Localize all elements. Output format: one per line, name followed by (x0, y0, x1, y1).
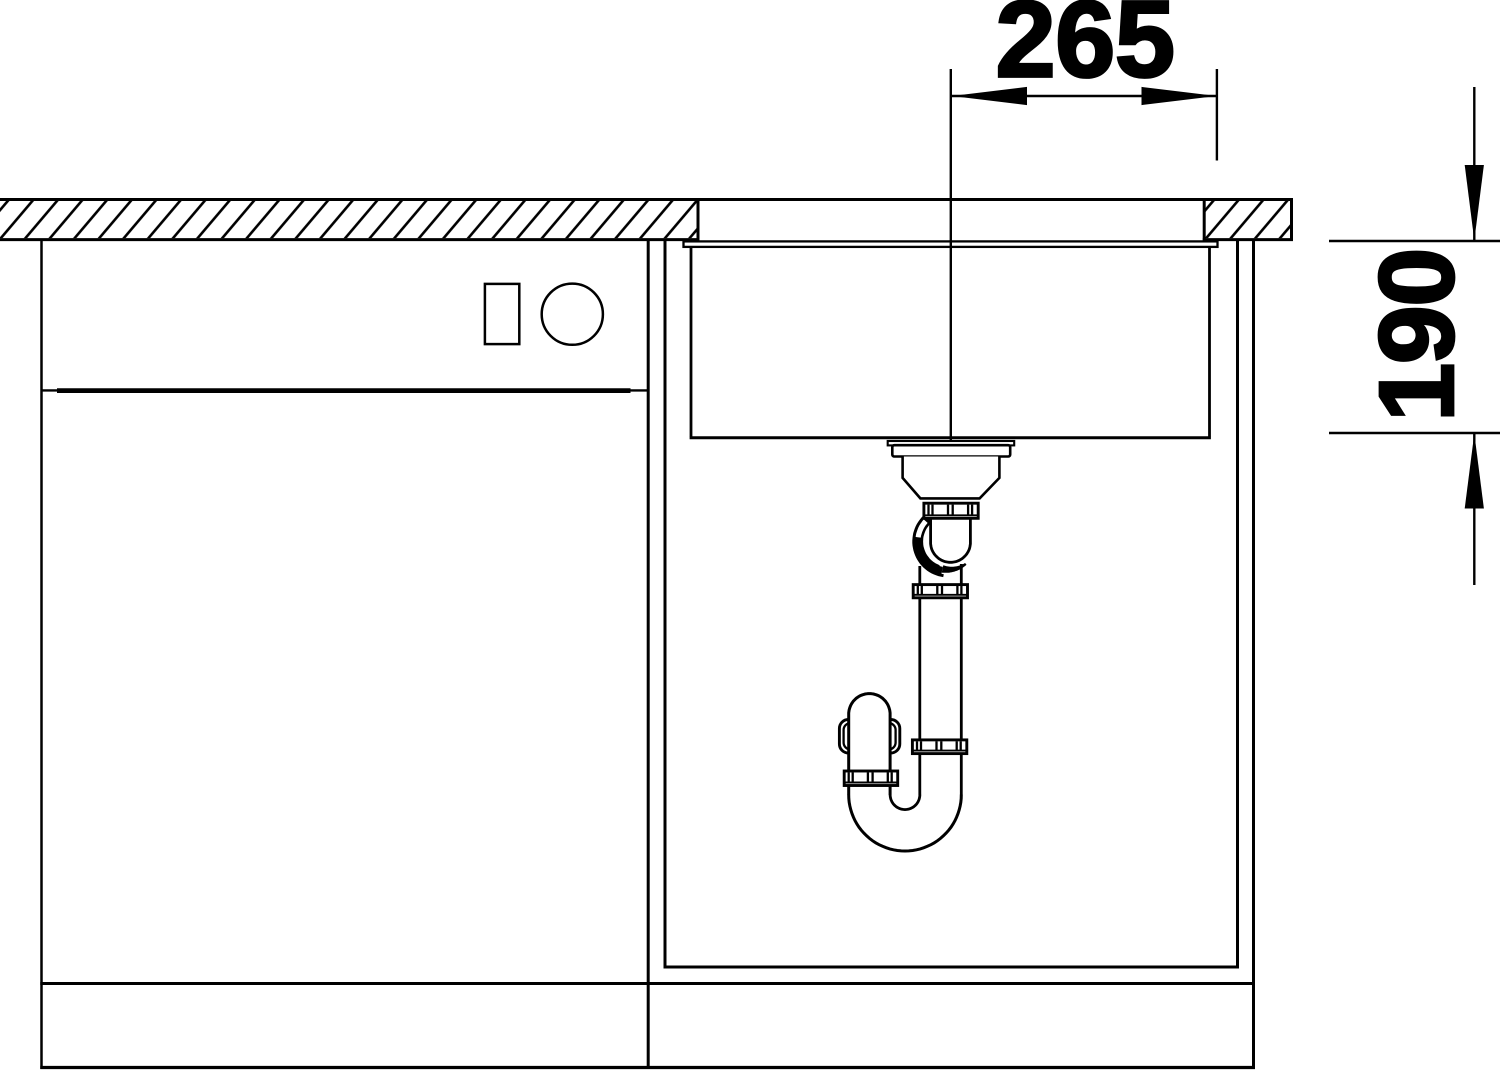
svg-text:265: 265 (995, 0, 1174, 100)
svg-text:190: 190 (1358, 249, 1476, 422)
